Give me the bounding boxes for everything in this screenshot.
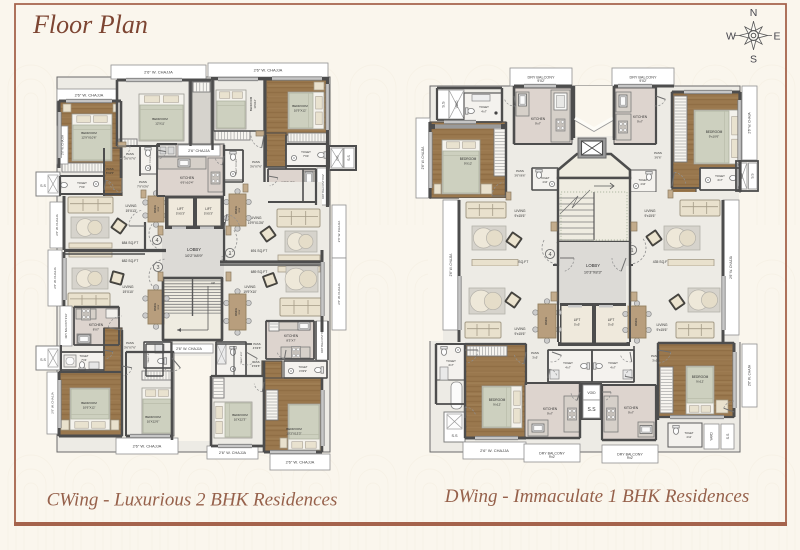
svg-text:TOILET 7'6"X2'6": TOILET 7'6"X2'6" xyxy=(236,158,238,175)
svg-text:2'6" CHAJJA: 2'6" CHAJJA xyxy=(188,149,210,153)
svg-text:E: E xyxy=(773,30,780,42)
svg-text:19'X10': 19'X10' xyxy=(122,290,133,294)
svg-text:DINING: DINING xyxy=(155,205,157,213)
svg-text:691 SQ.FT: 691 SQ.FT xyxy=(251,249,268,253)
svg-text:2'6" W. CHAJJA: 2'6" W. CHAJJA xyxy=(176,347,202,351)
svg-text:4'x7': 4'x7' xyxy=(610,366,616,370)
svg-text:LIFT: LIFT xyxy=(177,207,184,211)
svg-text:2'6" W. CHAJJA: 2'6" W. CHAJJA xyxy=(133,444,162,449)
svg-text:DWing - Immaculate 1 BHK Resid: DWing - Immaculate 1 BHK Residences xyxy=(444,486,749,507)
svg-text:TOILET: TOILET xyxy=(479,105,489,109)
svg-text:W: W xyxy=(726,30,736,42)
svg-text:S.S: S.S xyxy=(441,101,445,108)
svg-text:BEDROOM: BEDROOM xyxy=(292,104,308,108)
svg-text:5'X5'3": 5'X5'3" xyxy=(204,212,213,216)
svg-text:S.S: S.S xyxy=(451,434,458,438)
svg-text:TOILET: TOILET xyxy=(298,365,307,369)
svg-text:2'6" W. CHAJJA: 2'6" W. CHAJJA xyxy=(729,255,733,279)
svg-text:7'X4': 7'X4' xyxy=(79,185,86,189)
svg-text:19'X13': 19'X13' xyxy=(125,209,136,213)
svg-text:2'6" W. CHAJJA: 2'6" W. CHAJJA xyxy=(144,70,173,75)
svg-text:VOID: VOID xyxy=(587,391,596,395)
svg-text:DINING: DINING xyxy=(236,206,238,214)
svg-text:4'x7': 4'x7' xyxy=(717,178,723,182)
svg-text:12'X11': 12'X11' xyxy=(155,122,165,126)
svg-text:LIVING: LIVING xyxy=(514,327,525,331)
svg-text:2'6" W. CHAJJA: 2'6" W. CHAJJA xyxy=(337,221,341,242)
svg-text:D.O: D.O xyxy=(336,155,340,161)
svg-text:9'x15'6": 9'x15'6" xyxy=(514,214,525,218)
svg-text:DINING: DINING xyxy=(155,303,157,311)
svg-text:9'x2': 9'x2' xyxy=(549,455,556,459)
svg-text:KITCHEN: KITCHEN xyxy=(624,406,639,410)
svg-text:LIFT: LIFT xyxy=(608,318,615,322)
svg-text:BEDROOM: BEDROOM xyxy=(460,157,477,161)
svg-text:689 SQ.FT: 689 SQ.FT xyxy=(251,270,268,274)
svg-text:Floor Plan: Floor Plan xyxy=(32,10,148,39)
svg-text:3'6"X7'6": 3'6"X7'6" xyxy=(124,346,136,350)
svg-text:KITCHEN: KITCHEN xyxy=(543,407,558,411)
svg-text:10'2"X8'9": 10'2"X8'9" xyxy=(185,253,204,258)
svg-text:10'X12': 10'X12' xyxy=(253,99,257,109)
svg-text:S: S xyxy=(750,54,757,66)
svg-text:LIVING: LIVING xyxy=(125,204,136,208)
svg-text:2'6" W. CHAJJA: 2'6" W. CHAJJA xyxy=(480,448,509,453)
svg-text:LOBBY: LOBBY xyxy=(586,263,600,268)
svg-text:4'X3'9": 4'X3'9" xyxy=(299,369,307,373)
svg-text:435 SQ.FT: 435 SQ.FT xyxy=(653,260,670,264)
svg-text:DRY BALCONY 9'X2': DRY BALCONY 9'X2' xyxy=(64,313,68,338)
svg-text:S.S: S.S xyxy=(726,433,730,439)
svg-text:10'6"X12': 10'6"X12' xyxy=(83,406,96,410)
svg-text:LOBBY: LOBBY xyxy=(187,247,201,252)
svg-text:5'x5': 5'x5' xyxy=(574,323,580,327)
svg-text:19'9"X13'6": 19'9"X13'6" xyxy=(248,221,264,225)
svg-text:PASS: PASS xyxy=(654,151,662,155)
svg-text:9'x12': 9'x12' xyxy=(493,403,501,407)
svg-text:S.S: S.S xyxy=(751,173,755,178)
svg-text:4'x2': 4'x2' xyxy=(686,435,692,439)
svg-text:PASS: PASS xyxy=(516,169,524,173)
svg-text:10'3"X13'3": 10'3"X13'3" xyxy=(286,432,301,436)
svg-text:2'6" W. CHAJA: 2'6" W. CHAJA xyxy=(748,364,752,386)
svg-text:4: 4 xyxy=(155,238,158,244)
svg-text:9'x7': 9'x7' xyxy=(547,412,553,416)
svg-text:10'9"X12': 10'9"X12' xyxy=(294,109,307,113)
svg-text:LIFT: LIFT xyxy=(205,207,212,211)
svg-text:3'6"6": 3'6"6" xyxy=(654,156,661,160)
svg-text:9'x7': 9'x7' xyxy=(535,122,541,126)
svg-text:2'6" W. CHAJA: 2'6" W. CHAJA xyxy=(748,112,752,134)
svg-text:8'X4': 8'X4' xyxy=(158,206,160,211)
svg-text:9'x15'6": 9'x15'6" xyxy=(656,328,667,332)
svg-text:5'X5'3": 5'X5'3" xyxy=(176,212,185,216)
svg-text:3'X3'6": 3'X3'6" xyxy=(252,364,261,368)
svg-text:2'6" W. CHAJJA: 2'6" W. CHAJJA xyxy=(254,68,283,73)
svg-text:9'X2': 9'X2' xyxy=(639,79,647,83)
svg-text:2'6" W. CHAJJA: 2'6" W. CHAJJA xyxy=(449,253,453,277)
svg-text:2'6" W. CHAJJA: 2'6" W. CHAJJA xyxy=(53,267,57,288)
svg-text:TOILET 7'3"X2'6": TOILET 7'3"X2'6" xyxy=(150,154,152,171)
svg-text:4'x7': 4'x7' xyxy=(448,363,454,367)
svg-text:2'6" W. CHAJJA: 2'6" W. CHAJJA xyxy=(421,146,425,170)
svg-text:10'X12'3": 10'X12'3" xyxy=(234,418,247,422)
svg-text:8'X7': 8'X7' xyxy=(93,328,100,332)
svg-text:PASS: PASS xyxy=(252,160,260,164)
svg-text:9'x7': 9'x7' xyxy=(628,411,634,415)
svg-text:DINING: DINING xyxy=(636,318,638,326)
svg-text:BEDROOM: BEDROOM xyxy=(706,130,723,134)
svg-text:TOILET: TOILET xyxy=(608,361,618,365)
svg-text:TOILET: TOILET xyxy=(540,176,549,180)
svg-text:PASS: PASS xyxy=(106,167,113,171)
svg-text:682 SQ.FT: 682 SQ.FT xyxy=(122,259,139,263)
svg-text:LIVING: LIVING xyxy=(514,209,525,213)
svg-text:KITCHEN: KITCHEN xyxy=(633,115,648,119)
svg-text:PASS: PASS xyxy=(139,180,147,184)
svg-text:2'6" W. CHAJJA: 2'6" W. CHAJJA xyxy=(337,283,341,304)
svg-text:VOID: VOID xyxy=(455,100,459,108)
svg-text:6'6"x10'4": 6'6"x10'4" xyxy=(180,181,193,185)
svg-text:BEDROOM: BEDROOM xyxy=(145,415,161,419)
svg-text:BEDROOM: BEDROOM xyxy=(692,375,709,379)
svg-text:KITCHEN: KITCHEN xyxy=(284,334,299,338)
svg-text:9'x15'6": 9'x15'6" xyxy=(644,214,655,218)
svg-text:2'6" W. CHAJJA: 2'6" W. CHAJJA xyxy=(219,451,247,455)
svg-text:LIVING: LIVING xyxy=(656,323,667,327)
svg-text:3'6"X7'6": 3'6"X7'6" xyxy=(124,157,136,161)
svg-text:2'6" W. CHAJJA: 2'6" W. CHAJJA xyxy=(286,460,315,465)
svg-text:9'X12': 9'X12' xyxy=(464,162,473,166)
svg-text:LIVING: LIVING xyxy=(250,216,261,220)
svg-text:TOILET: TOILET xyxy=(638,178,647,182)
svg-text:UP: UP xyxy=(211,281,215,285)
svg-text:2'6" W. CHAJJA: 2'6" W. CHAJJA xyxy=(55,214,59,235)
svg-text:4: 4 xyxy=(548,252,551,258)
svg-text:3'x5': 3'x5' xyxy=(532,356,538,360)
svg-text:4'X3'6": 4'X3'6" xyxy=(253,346,262,350)
svg-text:9'x15'6": 9'x15'6" xyxy=(514,332,525,336)
svg-text:8'X4': 8'X4' xyxy=(239,309,241,314)
svg-text:LIVING: LIVING xyxy=(644,209,655,213)
svg-text:9'x7': 9'x7' xyxy=(637,120,643,124)
svg-text:BEDROOM: BEDROOM xyxy=(489,398,506,402)
svg-text:TOILET 4'X7': TOILET 4'X7' xyxy=(241,351,243,364)
svg-text:9'x2': 9'x2' xyxy=(627,456,634,460)
svg-text:YARD: YARD xyxy=(710,431,714,440)
svg-text:3'6"X7'6": 3'6"X7'6" xyxy=(250,165,262,169)
svg-text:PASS: PASS xyxy=(126,341,134,345)
svg-text:9'x12': 9'x12' xyxy=(696,380,704,384)
svg-text:2'6" W. CHAJJA: 2'6" W. CHAJJA xyxy=(51,392,55,413)
svg-text:BEDROOM: BEDROOM xyxy=(232,413,248,417)
svg-text:S.S: S.S xyxy=(40,184,46,188)
svg-text:BEDROOM: BEDROOM xyxy=(81,401,97,405)
svg-text:4'x6': 4'x6' xyxy=(640,182,646,186)
svg-text:S.S: S.S xyxy=(40,358,46,362)
svg-text:LIVING: LIVING xyxy=(244,285,255,289)
svg-text:KITCHEN: KITCHEN xyxy=(89,323,104,327)
svg-text:4'x6': 4'x6' xyxy=(542,180,548,184)
svg-text:10'X12'6": 10'X12'6" xyxy=(147,420,160,424)
svg-text:9'X2': 9'X2' xyxy=(537,79,545,83)
svg-text:7'9"X3'6": 7'9"X3'6" xyxy=(137,185,149,189)
svg-text:8'X4': 8'X4' xyxy=(158,304,160,309)
svg-text:CWing - Luxurious 2 BHK Reside: CWing - Luxurious 2 BHK Residences xyxy=(47,490,338,511)
svg-text:2'6" W. CHAJJA: 2'6" W. CHAJJA xyxy=(75,93,104,98)
svg-text:BEDROOM: BEDROOM xyxy=(152,117,168,121)
svg-text:LIFT: LIFT xyxy=(574,318,581,322)
svg-text:7'X4': 7'X4' xyxy=(81,358,87,362)
svg-text:TOILET: TOILET xyxy=(563,361,573,365)
svg-text:BEDROOM: BEDROOM xyxy=(81,131,97,135)
svg-text:DINING: DINING xyxy=(236,308,238,316)
svg-text:TOILET: TOILET xyxy=(79,354,88,358)
svg-text:PASS: PASS xyxy=(531,351,539,355)
svg-text:9'x10'6": 9'x10'6" xyxy=(709,135,719,139)
svg-text:4'x7': 4'x7' xyxy=(481,110,487,114)
svg-text:8'X4': 8'X4' xyxy=(239,207,241,212)
svg-text:DINING: DINING xyxy=(546,317,548,325)
svg-text:3: 3 xyxy=(156,265,159,271)
svg-text:19'9"X10': 19'9"X10' xyxy=(243,290,257,294)
svg-text:7'X4': 7'X4' xyxy=(303,154,310,158)
svg-text:KITCHEN: KITCHEN xyxy=(180,176,195,180)
svg-text:4'x7': 4'x7' xyxy=(565,366,571,370)
svg-text:12'9"X10'6": 12'9"X10'6" xyxy=(81,136,96,140)
svg-text:8'3"X7': 8'3"X7' xyxy=(286,339,296,343)
svg-text:TOILET: TOILET xyxy=(684,431,693,435)
svg-text:N: N xyxy=(750,7,758,19)
svg-text:3'6"X6'6": 3'6"X6'6" xyxy=(514,174,525,178)
svg-text:LIVING: LIVING xyxy=(122,285,133,289)
svg-text:684 SQ.FT: 684 SQ.FT xyxy=(122,241,139,245)
svg-text:5'x5': 5'x5' xyxy=(608,323,614,327)
svg-text:10'3"X8'3": 10'3"X8'3" xyxy=(584,270,603,275)
svg-text:S.S: S.S xyxy=(587,407,596,413)
svg-text:KITCHEN: KITCHEN xyxy=(531,117,546,121)
svg-text:S.S: S.S xyxy=(347,155,351,161)
svg-text:8'X4'5": 8'X4'5" xyxy=(106,171,114,175)
svg-text:BEDROOM: BEDROOM xyxy=(286,427,302,431)
